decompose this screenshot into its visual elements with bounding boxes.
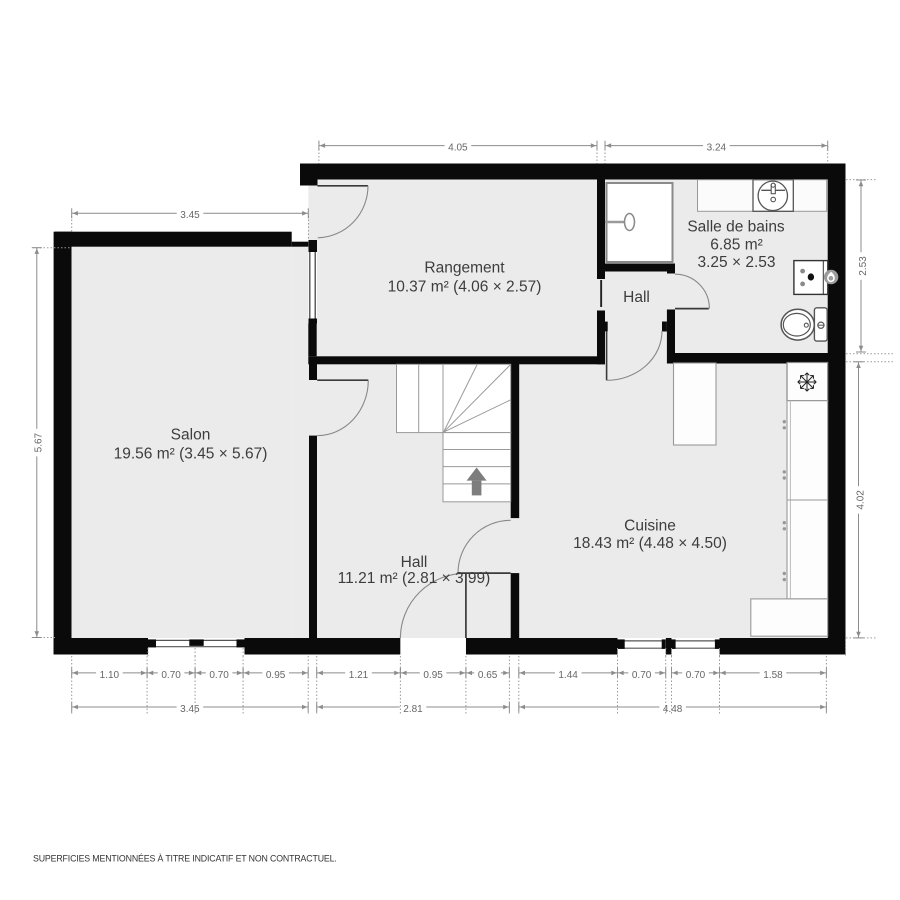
svg-text:5.67: 5.67 [34,432,45,452]
svg-text:1.58: 1.58 [763,670,783,681]
svg-text:0.70: 0.70 [209,670,229,681]
svg-text:4.05: 4.05 [448,143,468,154]
svg-text:3.24: 3.24 [707,143,727,154]
svg-text:1.44: 1.44 [558,670,578,681]
svg-text:11.21 m² (2.81 × 3.99): 11.21 m² (2.81 × 3.99) [338,570,491,587]
svg-text:4.02: 4.02 [855,490,866,510]
svg-text:18.43 m² (4.48 × 4.50): 18.43 m² (4.48 × 4.50) [573,535,727,552]
svg-text:0.95: 0.95 [266,670,286,681]
svg-text:Salon: Salon [171,427,211,444]
svg-text:1.21: 1.21 [349,670,369,681]
svg-text:0.70: 0.70 [686,670,706,681]
svg-text:Rangement: Rangement [424,260,505,277]
svg-text:0.70: 0.70 [632,670,652,681]
svg-text:1.10: 1.10 [100,670,120,681]
svg-text:SUPERFICIES MENTIONNÉES À TITR: SUPERFICIES MENTIONNÉES À TITRE INDICATI… [33,854,337,864]
svg-text:2.53: 2.53 [858,256,869,276]
svg-text:3.25 × 2.53: 3.25 × 2.53 [698,254,776,271]
svg-text:6.85 m²: 6.85 m² [710,236,763,253]
svg-text:Salle de bains: Salle de bains [687,218,785,235]
svg-text:Hall: Hall [623,289,650,306]
svg-text:3.45: 3.45 [180,210,200,221]
svg-text:2.81: 2.81 [403,704,423,715]
svg-text:0.70: 0.70 [161,670,181,681]
svg-text:Cuisine: Cuisine [624,518,676,535]
svg-text:3.45: 3.45 [180,704,200,715]
svg-text:0.65: 0.65 [478,670,498,681]
svg-text:19.56 m² (3.45 × 5.67): 19.56 m² (3.45 × 5.67) [114,446,268,463]
svg-text:Hall: Hall [401,554,428,571]
svg-text:0.95: 0.95 [423,670,443,681]
svg-text:10.37 m² (4.06 × 2.57): 10.37 m² (4.06 × 2.57) [388,279,542,296]
